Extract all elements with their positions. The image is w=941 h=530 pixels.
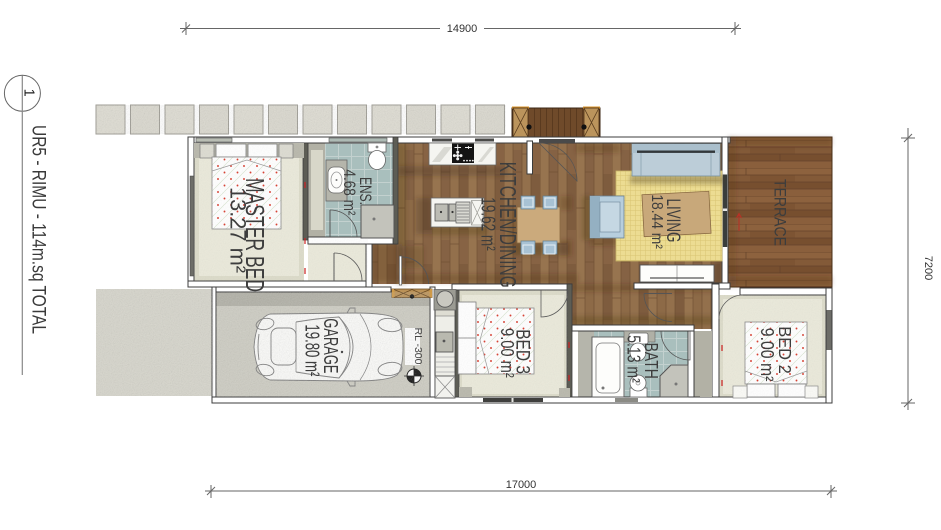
svg-text:TERRACE: TERRACE — [771, 179, 790, 246]
svg-text:UR5 - RIMU - 114m.sq TOTAL: UR5 - RIMU - 114m.sq TOTAL — [28, 125, 49, 334]
svg-text:5.13 m²: 5.13 m² — [624, 335, 644, 383]
svg-text:4.68 m²: 4.68 m² — [340, 169, 358, 215]
svg-text:19.62 m²: 19.62 m² — [476, 197, 498, 251]
svg-text:9.00 m²: 9.00 m² — [757, 328, 777, 382]
svg-text:9.00 m²: 9.00 m² — [497, 328, 518, 378]
svg-text:18.44 m²: 18.44 m² — [648, 194, 665, 249]
svg-text:17000: 17000 — [506, 479, 537, 491]
svg-text:13.27 m²: 13.27 m² — [226, 187, 251, 273]
svg-text:BED 2: BED 2 — [775, 326, 795, 374]
svg-text:7200: 7200 — [922, 256, 934, 280]
svg-text:14900: 14900 — [447, 23, 478, 35]
svg-text:19.80 m²: 19.80 m² — [300, 324, 322, 376]
